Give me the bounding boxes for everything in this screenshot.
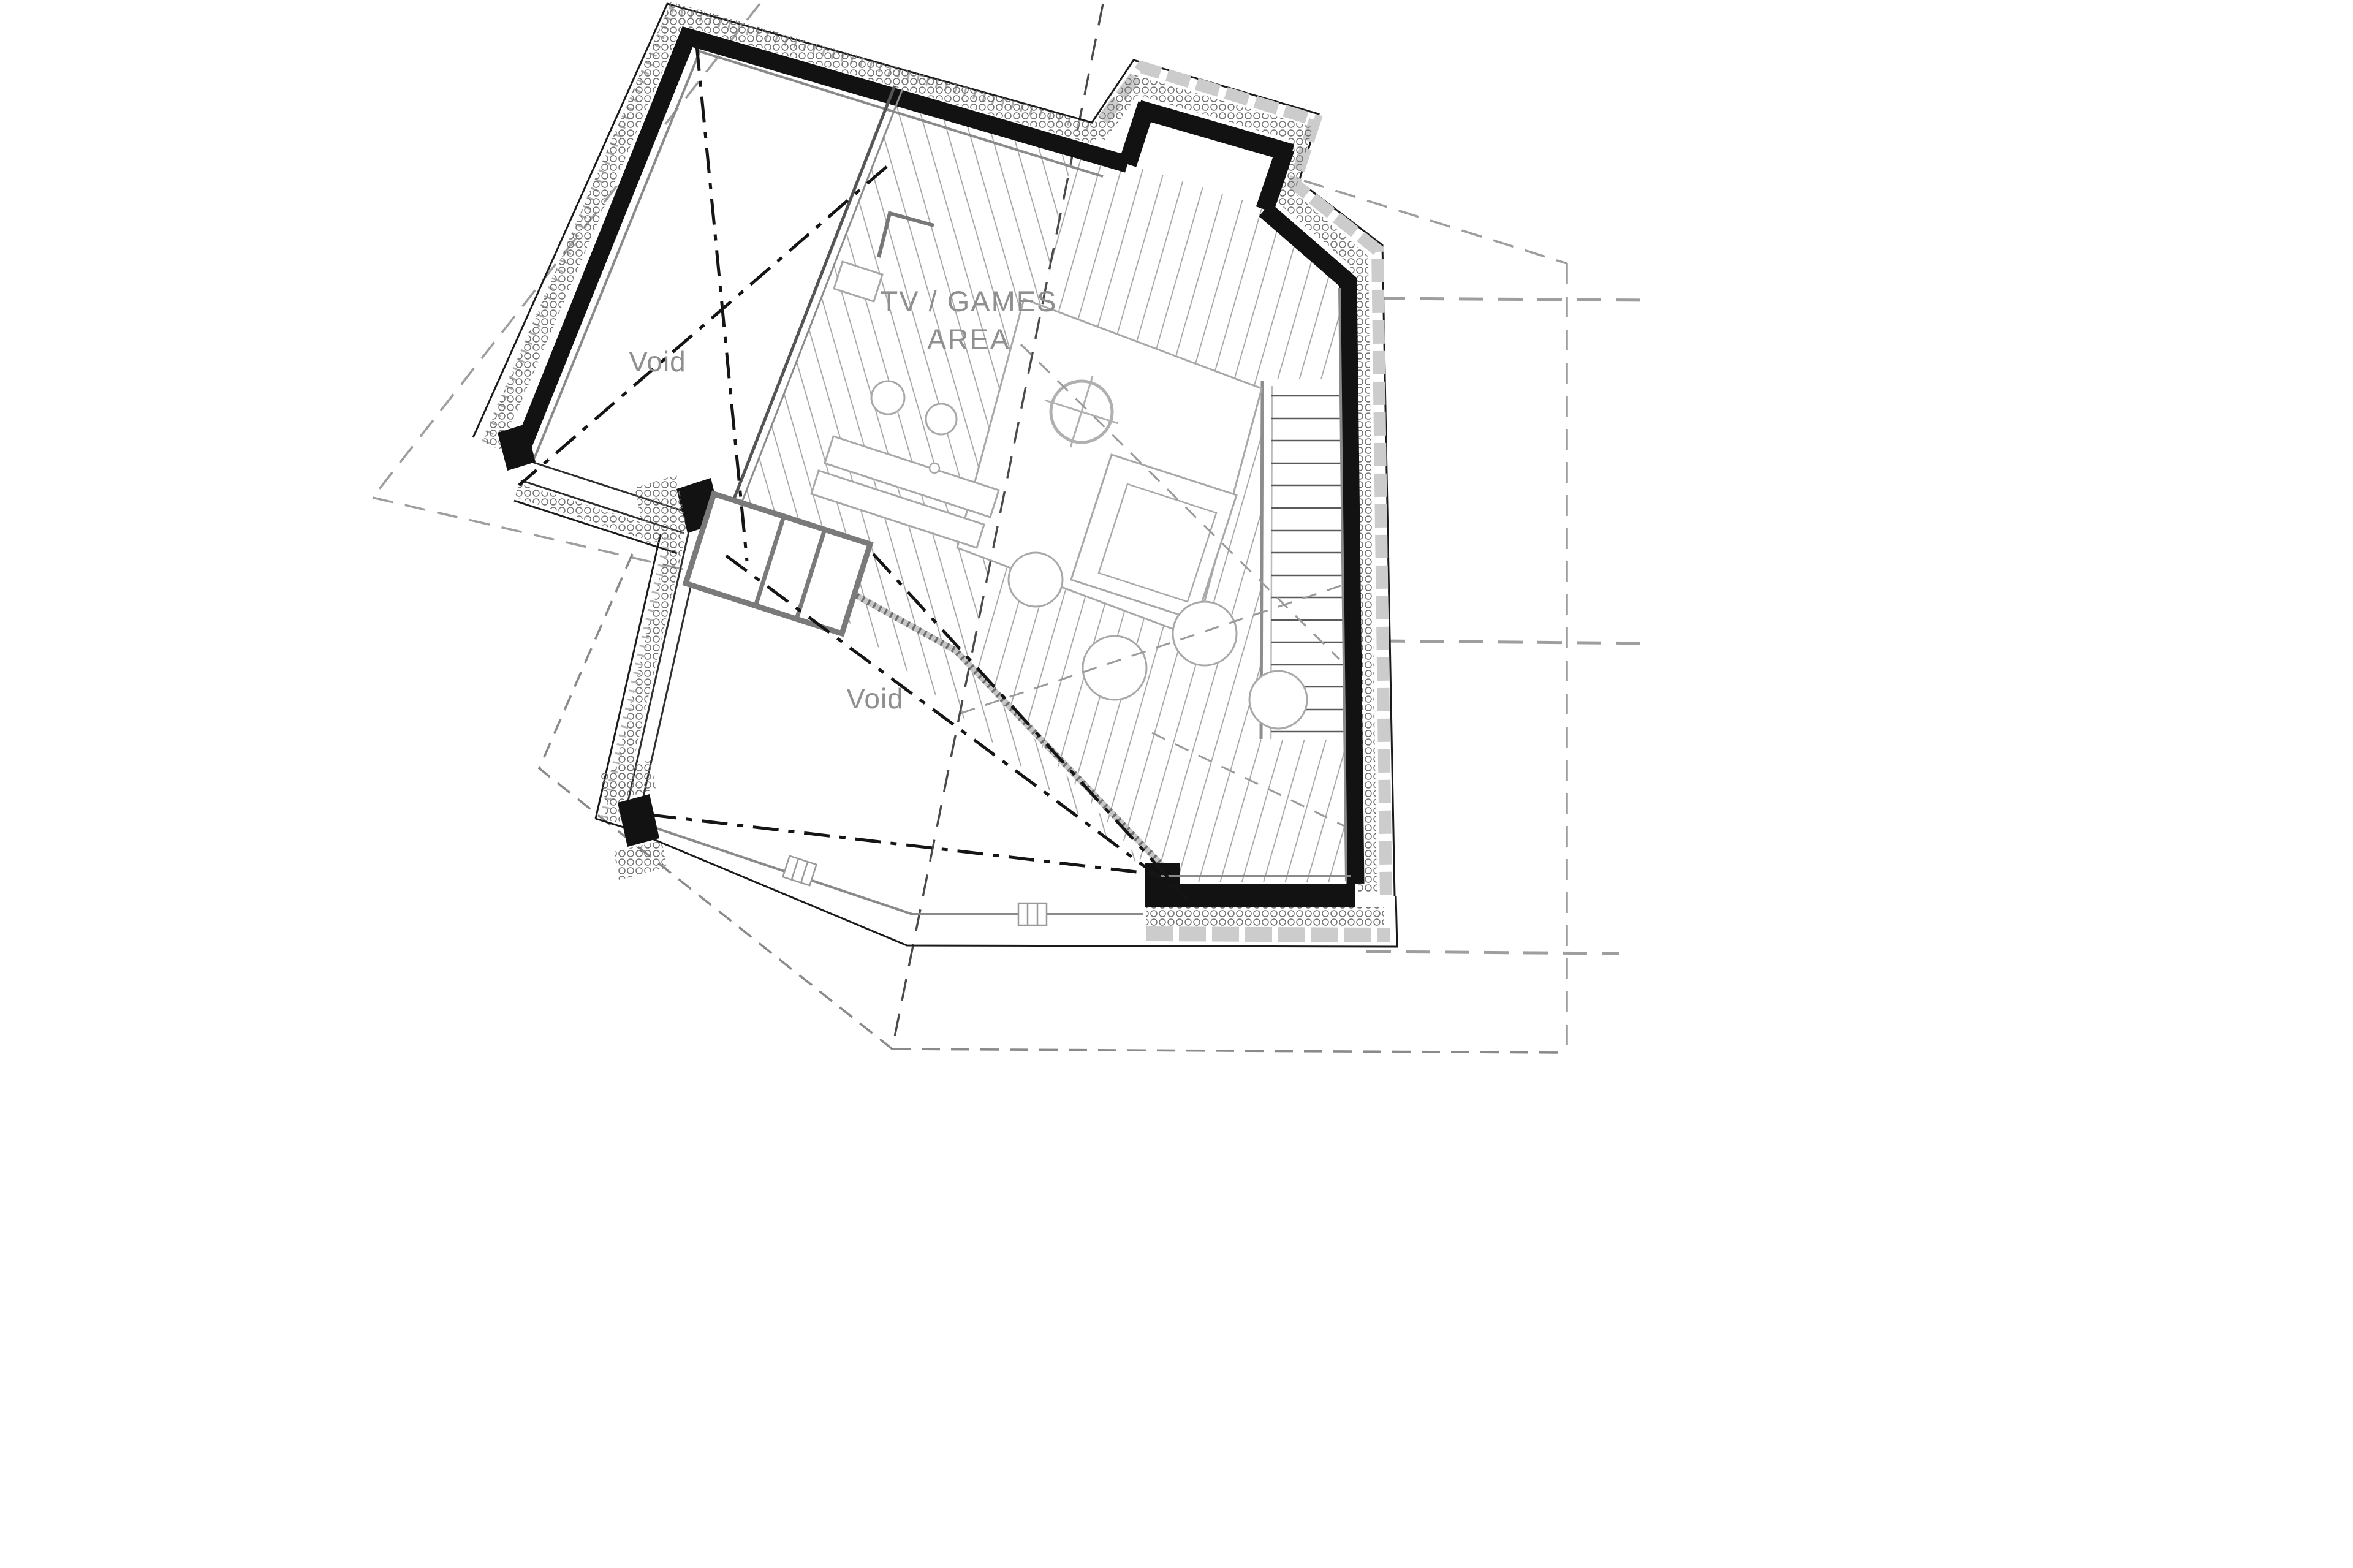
small-dot: [930, 463, 939, 473]
window-marker-diagonal: [783, 856, 817, 885]
void-label-lower: Void: [846, 683, 904, 714]
pouf-4: [1249, 671, 1307, 729]
bottom-left-wall-inner-gray: [642, 824, 1143, 914]
pouf-2: [1083, 636, 1146, 700]
room-label-line1: TV / GAMES: [881, 285, 1058, 317]
room-label-line2: AREA: [927, 323, 1010, 355]
pouf-3: [1173, 602, 1237, 665]
pier-bottom-insulation-b: [614, 841, 667, 880]
grid-dash-bottom-right: [1366, 952, 1619, 953]
stool-1: [871, 381, 904, 414]
floor-plan-document: TV / GAMES AREA Void Void: [0, 0, 2353, 1568]
stone-band-bottom: [1146, 934, 1390, 935]
grid-dash-right-lower: [1381, 641, 1654, 643]
window-marker-bottom: [1018, 903, 1047, 925]
pier-bottom-left: [618, 794, 659, 847]
floor-plan-canvas: TV / GAMES AREA Void Void: [0, 0, 2353, 1568]
pouf-1: [1009, 553, 1063, 607]
stool-2: [926, 404, 957, 434]
boundary-dash-bottom: [892, 1049, 1567, 1053]
void-label-upper: Void: [629, 346, 686, 377]
grid-dash-right-upper: [1381, 298, 1654, 300]
